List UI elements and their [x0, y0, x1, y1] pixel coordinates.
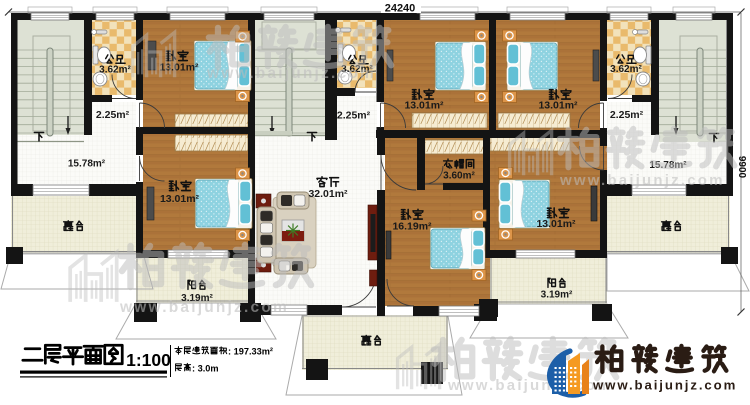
svg-text:3.62m²: 3.62m²	[99, 65, 131, 76]
svg-text:2.25m²: 2.25m²	[610, 109, 644, 121]
svg-text:2.25m²: 2.25m²	[96, 109, 130, 121]
svg-text:3.62m²: 3.62m²	[610, 64, 642, 75]
svg-text:: 3.0m: : 3.0m	[192, 364, 219, 374]
svg-text:3.60m²: 3.60m²	[443, 171, 475, 182]
svg-text:13.01m²: 13.01m²	[536, 218, 576, 230]
svg-text:13.01m²: 13.01m²	[538, 100, 578, 112]
svg-text:www.baijunjz.com: www.baijunjz.com	[206, 65, 376, 82]
svg-text:13.01m²: 13.01m²	[404, 100, 444, 112]
svg-text:15.78m²: 15.78m²	[68, 159, 106, 170]
svg-text:16.19m²: 16.19m²	[392, 221, 432, 233]
svg-text:: 197.33m²: : 197.33m²	[228, 347, 273, 357]
svg-text:13.01m²: 13.01m²	[160, 193, 200, 205]
svg-text:www.baijunjz.com: www.baijunjz.com	[592, 378, 737, 393]
svg-text:9900: 9900	[736, 156, 747, 179]
svg-text:www.baijunjz.com: www.baijunjz.com	[559, 172, 725, 189]
svg-text:www.baijunjz.com: www.baijunjz.com	[119, 299, 289, 316]
svg-text:24240: 24240	[385, 3, 416, 15]
svg-text:32.01m²: 32.01m²	[308, 188, 348, 200]
svg-text:2.25m²: 2.25m²	[337, 110, 371, 122]
svg-text:3.19m²: 3.19m²	[541, 290, 573, 301]
svg-text:1:100: 1:100	[126, 350, 171, 370]
